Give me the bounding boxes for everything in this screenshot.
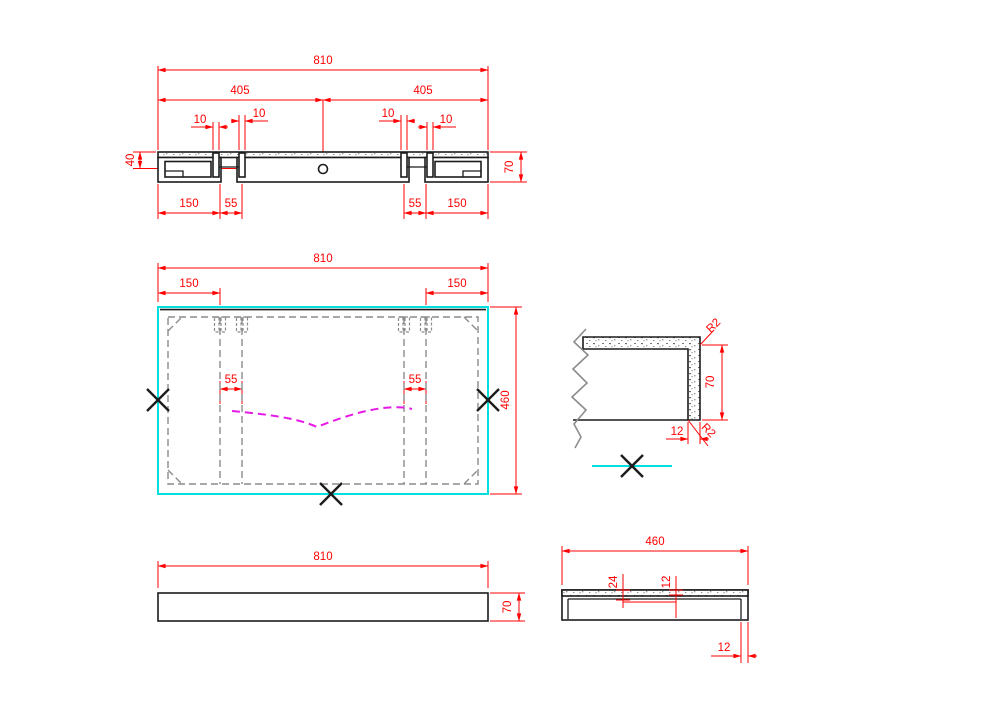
plan-dimensions: 810 150 150 55 55 460: [158, 253, 522, 494]
dim-plan-margin-right: 150: [447, 278, 466, 290]
dim-slot-d: 10: [440, 114, 453, 126]
dim-front-thickness: 70: [502, 601, 514, 614]
dim-front-overall: 810: [313, 551, 332, 563]
cad-drawing: 810 405 405 10 10 10: [0, 0, 1000, 707]
dim-plan-overall: 810: [313, 253, 332, 265]
plan-view: 810 150 150 55 55 460: [147, 253, 522, 505]
edge-detail-view: R2 70 12 R2: [572, 316, 728, 477]
front-view: 810 70: [158, 551, 525, 621]
dim-plan-gap-left: 55: [225, 374, 238, 386]
section-dimensions: 810 405 405 10 10 10: [125, 55, 527, 219]
detail-laminate-profile: [583, 337, 700, 420]
center-hole: [319, 165, 328, 174]
hidden-slot-pairs: [215, 317, 432, 332]
chamfer-top-right: [464, 317, 478, 331]
worktop-outline: [158, 307, 488, 494]
dim-end-left: 150: [179, 198, 198, 210]
dim-side-depth: 460: [645, 536, 664, 548]
left-bracket-cutout: [165, 162, 211, 178]
dim-hole-offset: 40: [125, 154, 137, 167]
side-view: 460 24 12 12: [562, 536, 757, 663]
dim-radius-top: R2: [704, 316, 723, 335]
dim-gap-left: 55: [225, 198, 238, 210]
dim-end-right: 150: [447, 198, 466, 210]
dim-section-half-right: 405: [413, 85, 432, 97]
dim-gap-right: 55: [409, 198, 422, 210]
right-bracket-cutout: [435, 162, 481, 178]
section-geometry: [158, 152, 488, 182]
side-laminate-band: [562, 590, 748, 596]
hidden-inner-outline: [168, 317, 478, 484]
chamfer-bottom-left: [168, 470, 182, 484]
plan-geometry: [147, 307, 499, 505]
front-outline: [158, 593, 488, 621]
dim-section-overall: 810: [313, 55, 332, 67]
slot-b: [239, 153, 245, 177]
dim-side-rebate: 24: [608, 575, 620, 588]
dim-slot-c: 10: [382, 108, 395, 120]
dim-section-thickness: 70: [504, 161, 516, 174]
chamfer-bottom-right: [464, 470, 478, 484]
dim-side-laminate: 12: [661, 576, 673, 589]
dim-section-half-left: 405: [230, 85, 249, 97]
side-geometry: [562, 590, 748, 620]
dim-plan-depth: 460: [500, 390, 512, 409]
dim-plan-margin-left: 150: [179, 278, 198, 290]
dim-side-edge: 12: [718, 642, 731, 654]
slot-d: [427, 153, 433, 177]
dim-slot-a: 10: [194, 114, 207, 126]
dim-plan-gap-right: 55: [409, 374, 422, 386]
dim-detail-thickness: 70: [705, 376, 717, 389]
slot-a: [213, 153, 219, 177]
worktop-laminate-band: [158, 152, 488, 158]
cad-sheet: 810 405 405 10 10 10: [0, 0, 1000, 707]
wave-profile-curve: [232, 407, 412, 427]
slot-c: [401, 153, 407, 177]
chamfer-top-left: [168, 317, 182, 331]
dim-detail-edge: 12: [671, 426, 684, 438]
dim-slot-b: 10: [253, 108, 266, 120]
section-view: 810 405 405 10 10 10: [125, 55, 527, 219]
